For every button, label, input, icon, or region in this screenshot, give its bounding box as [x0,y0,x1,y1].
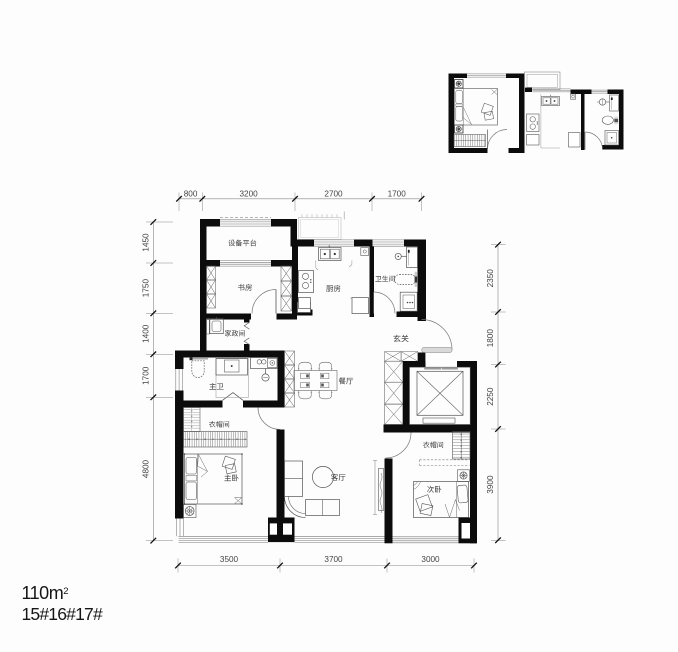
svg-text:1700: 1700 [388,190,407,199]
svg-text:1700: 1700 [141,366,150,385]
svg-text:3900: 3900 [486,475,495,494]
svg-text:110m2: 110m2 [22,583,69,603]
svg-text:1800: 1800 [486,329,495,348]
svg-text:4800: 4800 [141,459,150,478]
svg-text:2350: 2350 [486,269,495,288]
svg-text:2700: 2700 [324,190,343,199]
svg-text:1400: 1400 [141,324,150,343]
svg-text:1450: 1450 [141,233,150,252]
svg-text:1750: 1750 [141,279,150,298]
svg-text:2250: 2250 [486,387,495,406]
svg-text:15#16#17#: 15#16#17# [22,604,103,624]
svg-text:3700: 3700 [324,555,343,564]
svg-text:3200: 3200 [239,190,258,199]
svg-text:3000: 3000 [421,555,440,564]
svg-text:3500: 3500 [220,555,239,564]
svg-text:800: 800 [184,190,198,199]
